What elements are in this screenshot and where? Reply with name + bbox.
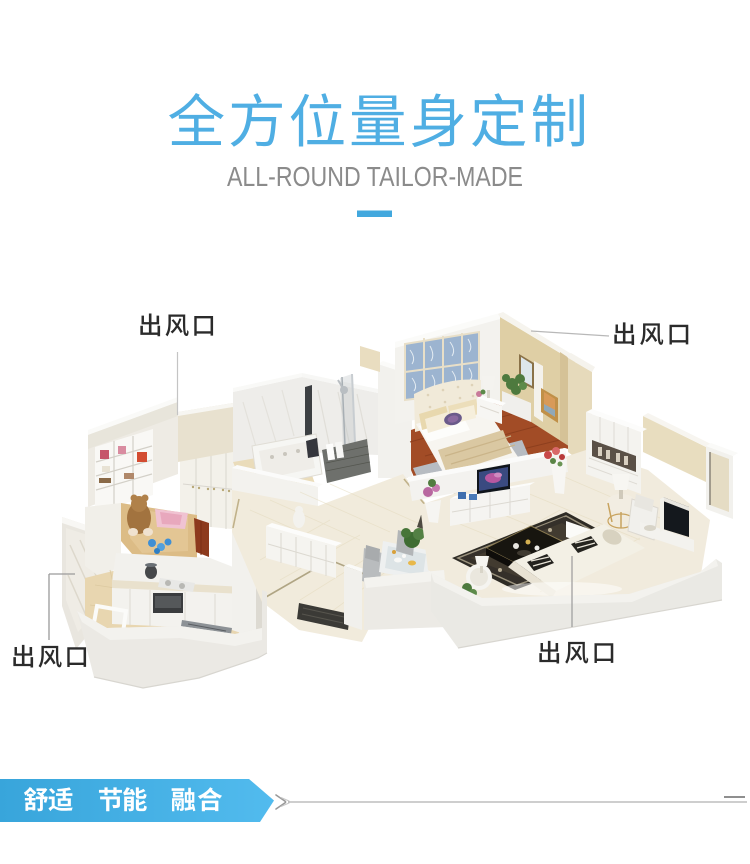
svg-text:ALL-ROUND TAILOR-MADE: ALL-ROUND TAILOR-MADE	[227, 161, 523, 192]
